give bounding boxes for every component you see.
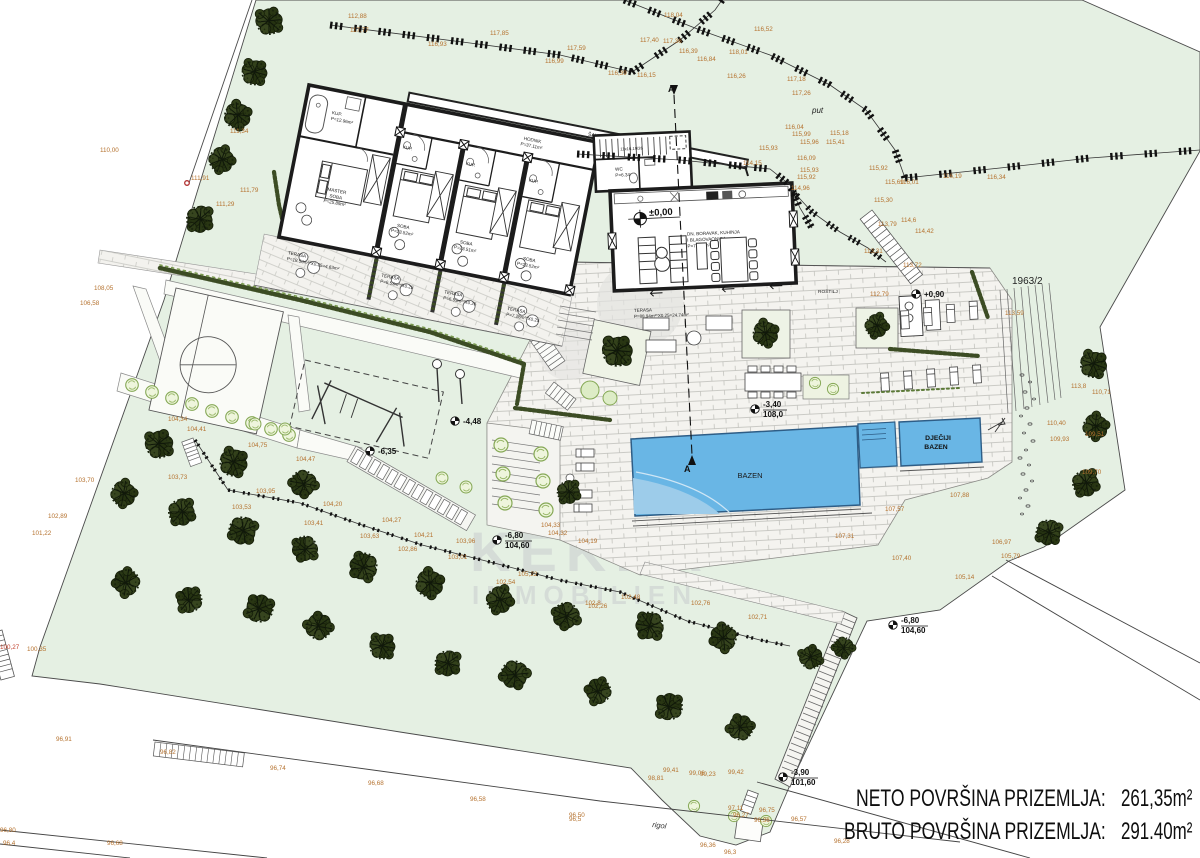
svg-text:117,40: 117,40 xyxy=(640,37,659,44)
svg-text:112,79: 112,79 xyxy=(870,291,889,298)
svg-text:103,41: 103,41 xyxy=(304,520,324,527)
svg-text:104,75: 104,75 xyxy=(248,442,268,449)
svg-text:103,95: 103,95 xyxy=(256,488,276,495)
svg-text:+0,90: +0,90 xyxy=(924,290,945,299)
svg-text:113,79: 113,79 xyxy=(878,221,897,228)
svg-text:96,57: 96,57 xyxy=(791,816,807,823)
svg-text:109,51: 109,51 xyxy=(1085,431,1105,438)
svg-text:107,88: 107,88 xyxy=(950,492,970,499)
svg-text:117,77: 117,77 xyxy=(350,27,369,34)
svg-text:102,71: 102,71 xyxy=(748,614,768,621)
svg-text:BAZEN: BAZEN xyxy=(924,444,948,451)
svg-text:102,86: 102,86 xyxy=(398,546,418,553)
svg-text:96,68: 96,68 xyxy=(107,840,123,847)
svg-text:116,39: 116,39 xyxy=(608,70,627,77)
svg-text:111,91: 111,91 xyxy=(191,175,210,182)
svg-text:117,59: 117,59 xyxy=(567,45,586,52)
svg-text:110,71: 110,71 xyxy=(1092,389,1111,396)
svg-text:116,52: 116,52 xyxy=(754,26,773,33)
svg-text:116,04: 116,04 xyxy=(785,124,804,131)
svg-text:116,26: 116,26 xyxy=(727,73,746,80)
svg-text:BAZEN: BAZEN xyxy=(737,471,762,480)
svg-text:114,96: 114,96 xyxy=(791,185,810,192)
svg-text:-3,40: -3,40 xyxy=(763,400,782,409)
svg-text:NETO POVRŠINA PRIZEMLJA:: NETO POVRŠINA PRIZEMLJA: xyxy=(856,783,1106,812)
svg-text:115,92: 115,92 xyxy=(869,165,888,172)
svg-text:115,41: 115,41 xyxy=(826,139,845,146)
svg-text:116,93: 116,93 xyxy=(428,41,447,48)
svg-text:100,27: 100,27 xyxy=(0,644,20,651)
svg-text:104,19: 104,19 xyxy=(578,538,598,545)
svg-text:105,14: 105,14 xyxy=(955,574,975,581)
svg-text:118,04: 118,04 xyxy=(664,12,683,19)
svg-text:117,26: 117,26 xyxy=(792,90,811,97)
svg-text:117,36: 117,36 xyxy=(663,38,682,45)
svg-text:102,26: 102,26 xyxy=(588,603,608,610)
svg-text:103,63: 103,63 xyxy=(360,533,380,540)
svg-text:104,33: 104,33 xyxy=(541,522,561,529)
svg-text:99,23: 99,23 xyxy=(700,771,716,778)
svg-text:104,60: 104,60 xyxy=(901,626,926,635)
svg-text:101,60: 101,60 xyxy=(791,778,816,787)
svg-text:102,89: 102,89 xyxy=(48,513,68,520)
svg-text:BRUTO POVRŠINA PRIZEMLJA:: BRUTO POVRŠINA PRIZEMLJA: xyxy=(844,816,1106,845)
svg-text:DJEČIJI: DJEČIJI xyxy=(925,433,951,442)
svg-text:110,40: 110,40 xyxy=(1047,420,1066,427)
svg-text:96,36: 96,36 xyxy=(700,842,716,849)
svg-text:108,05: 108,05 xyxy=(94,285,114,292)
svg-text:11x16,19/26: 11x16,19/26 xyxy=(620,145,644,151)
svg-text:111,79: 111,79 xyxy=(240,187,259,194)
svg-text:110,00: 110,00 xyxy=(100,147,119,154)
svg-text:102,48: 102,48 xyxy=(621,594,641,601)
svg-text:104,47: 104,47 xyxy=(296,456,316,463)
svg-text:96,91: 96,91 xyxy=(56,736,72,743)
svg-text:103,96: 103,96 xyxy=(456,538,476,545)
svg-text:A: A xyxy=(684,464,691,474)
svg-text:107,31: 107,31 xyxy=(835,533,855,540)
svg-text:103,01: 103,01 xyxy=(448,554,468,561)
svg-text:113,31: 113,31 xyxy=(864,248,883,255)
svg-text:104,41: 104,41 xyxy=(187,426,207,433)
svg-text:116,99: 116,99 xyxy=(545,58,564,65)
svg-text:96,36: 96,36 xyxy=(754,817,770,824)
svg-text:116,84: 116,84 xyxy=(697,56,716,63)
svg-text:106,97: 106,97 xyxy=(992,539,1012,546)
svg-text:111,34: 111,34 xyxy=(230,128,249,135)
svg-text:291.40m²: 291.40m² xyxy=(1121,818,1192,845)
svg-text:104,21: 104,21 xyxy=(414,532,434,539)
svg-text:107,40: 107,40 xyxy=(892,555,912,562)
svg-text:118,01: 118,01 xyxy=(729,49,748,56)
svg-text:106,58: 106,58 xyxy=(80,300,100,307)
svg-text:put: put xyxy=(811,106,824,115)
svg-text:105,79: 105,79 xyxy=(1001,553,1021,560)
svg-text:115,18: 115,18 xyxy=(830,130,849,137)
svg-text:96,74: 96,74 xyxy=(270,765,286,772)
svg-text:107,57: 107,57 xyxy=(885,506,905,513)
svg-text:117,18: 117,18 xyxy=(787,76,806,83)
svg-text:104,27: 104,27 xyxy=(382,517,402,524)
svg-text:115,99: 115,99 xyxy=(792,131,811,138)
svg-text:96,3: 96,3 xyxy=(724,849,737,856)
svg-text:102,54: 102,54 xyxy=(496,579,516,586)
svg-text:-3,90: -3,90 xyxy=(791,768,810,777)
svg-text:96,58: 96,58 xyxy=(470,796,486,803)
svg-text:114,15: 114,15 xyxy=(743,160,762,167)
svg-text:ROŠTILJ: ROŠTILJ xyxy=(818,288,838,295)
svg-text:-6,80: -6,80 xyxy=(505,531,524,540)
svg-text:97,11: 97,11 xyxy=(728,805,744,812)
svg-text:-4,48: -4,48 xyxy=(463,417,482,426)
svg-text:117,85: 117,85 xyxy=(490,30,509,37)
svg-text:96,4: 96,4 xyxy=(3,840,16,847)
svg-text:96,5: 96,5 xyxy=(569,816,582,823)
svg-text:102,76: 102,76 xyxy=(691,600,711,607)
svg-text:WC: WC xyxy=(615,166,624,171)
svg-text:104,34: 104,34 xyxy=(168,416,188,423)
svg-text:115,93: 115,93 xyxy=(759,145,778,152)
svg-text:112,88: 112,88 xyxy=(348,13,367,20)
svg-text:114,6: 114,6 xyxy=(901,217,917,224)
svg-text:1963/2: 1963/2 xyxy=(1012,276,1043,287)
svg-text:-6,80: -6,80 xyxy=(901,616,920,625)
svg-text:108,0: 108,0 xyxy=(763,410,784,419)
svg-text:116,01: 116,01 xyxy=(900,179,919,186)
svg-text:TERASA: TERASA xyxy=(634,307,652,313)
svg-text:A: A xyxy=(668,84,675,94)
svg-text:104,60: 104,60 xyxy=(505,541,530,550)
svg-text:115,92: 115,92 xyxy=(797,174,816,181)
svg-text:96,82: 96,82 xyxy=(160,749,176,756)
svg-text:rigol: rigol xyxy=(652,820,667,831)
svg-text:115,93: 115,93 xyxy=(800,167,819,174)
svg-text:96,27: 96,27 xyxy=(733,812,749,819)
svg-text:104,32: 104,32 xyxy=(548,530,568,537)
svg-text:115,30: 115,30 xyxy=(874,197,893,204)
svg-text:96,75: 96,75 xyxy=(759,807,775,814)
svg-text:100,35: 100,35 xyxy=(27,646,47,653)
svg-text:109,93: 109,93 xyxy=(1050,436,1070,443)
svg-text:98,81: 98,81 xyxy=(648,775,664,782)
svg-text:115,96: 115,96 xyxy=(800,139,819,146)
svg-text:101,22: 101,22 xyxy=(32,530,52,537)
svg-text:99,42: 99,42 xyxy=(728,769,744,776)
svg-text:-6,35: -6,35 xyxy=(378,447,397,456)
svg-text:113,72: 113,72 xyxy=(903,262,922,269)
svg-text:114,42: 114,42 xyxy=(915,228,934,235)
svg-text:96,68: 96,68 xyxy=(368,780,384,787)
svg-text:96,80: 96,80 xyxy=(0,827,16,834)
svg-text:116,09: 116,09 xyxy=(797,155,816,162)
svg-text:104,20: 104,20 xyxy=(323,501,343,508)
svg-text:113,8: 113,8 xyxy=(1071,383,1087,390)
svg-text:113,59: 113,59 xyxy=(1005,310,1024,317)
svg-text:103,70: 103,70 xyxy=(75,477,95,484)
svg-text:103,73: 103,73 xyxy=(168,474,188,481)
svg-text:±0,00: ±0,00 xyxy=(649,207,673,219)
svg-text:116,19: 116,19 xyxy=(943,173,962,180)
svg-text:109,70: 109,70 xyxy=(1082,469,1102,476)
svg-text:105,22: 105,22 xyxy=(518,571,538,578)
svg-text:99,41: 99,41 xyxy=(663,767,679,774)
svg-text:103,53: 103,53 xyxy=(232,504,252,511)
svg-text:116,34: 116,34 xyxy=(987,174,1006,181)
svg-text:116,39: 116,39 xyxy=(679,48,698,55)
svg-text:111,29: 111,29 xyxy=(216,201,235,208)
svg-text:116,15: 116,15 xyxy=(637,72,656,79)
svg-text:261,35m²: 261,35m² xyxy=(1121,785,1192,812)
